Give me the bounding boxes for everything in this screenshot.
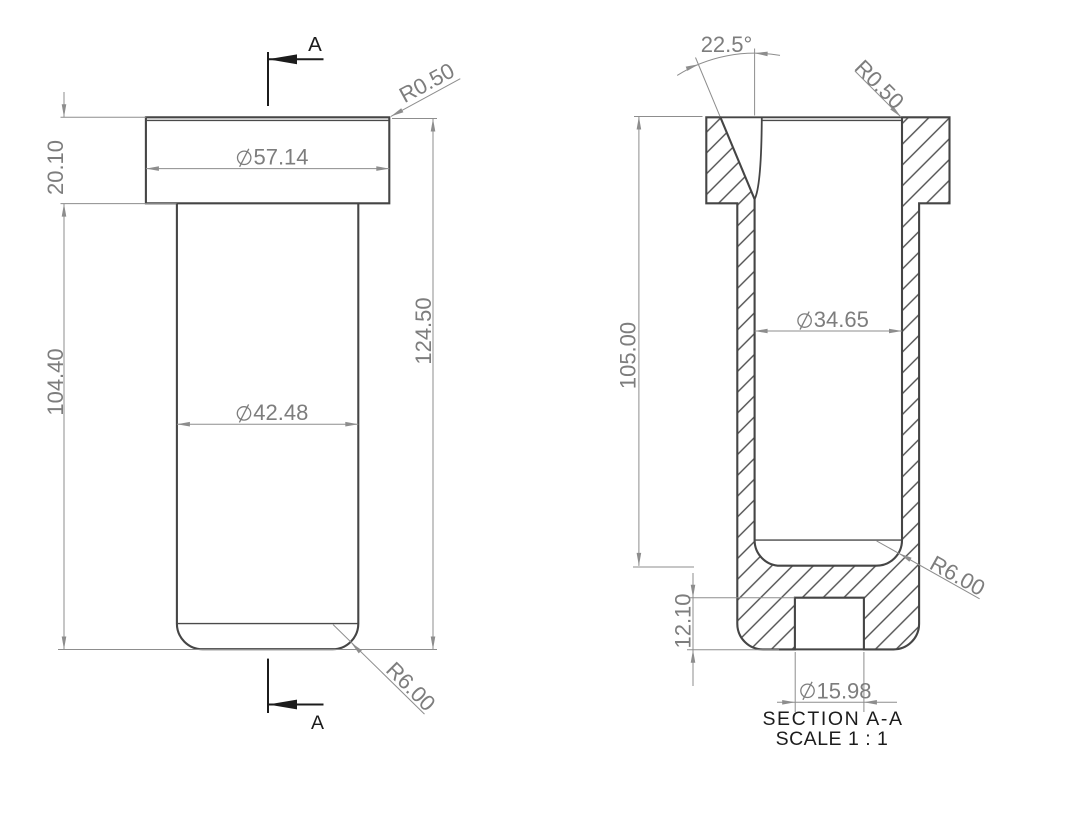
svg-text:124.50: 124.50 bbox=[411, 297, 436, 364]
svg-text:12.10: 12.10 bbox=[671, 593, 696, 648]
svg-text:105.00: 105.00 bbox=[616, 322, 641, 389]
svg-text:20.10: 20.10 bbox=[43, 140, 68, 195]
svg-text:22.5°: 22.5° bbox=[701, 32, 753, 57]
svg-text:A: A bbox=[308, 33, 322, 56]
svg-text:A: A bbox=[311, 712, 324, 734]
svg-text:104.40: 104.40 bbox=[43, 348, 68, 415]
svg-text:57.14: 57.14 bbox=[253, 145, 308, 170]
svg-text:34.65: 34.65 bbox=[814, 307, 869, 332]
svg-text:SCALE 1 : 1: SCALE 1 : 1 bbox=[776, 728, 889, 750]
svg-text:15.98: 15.98 bbox=[816, 678, 871, 703]
svg-text:42.48: 42.48 bbox=[253, 400, 308, 425]
svg-text:SECTION A-A: SECTION A-A bbox=[762, 708, 903, 730]
